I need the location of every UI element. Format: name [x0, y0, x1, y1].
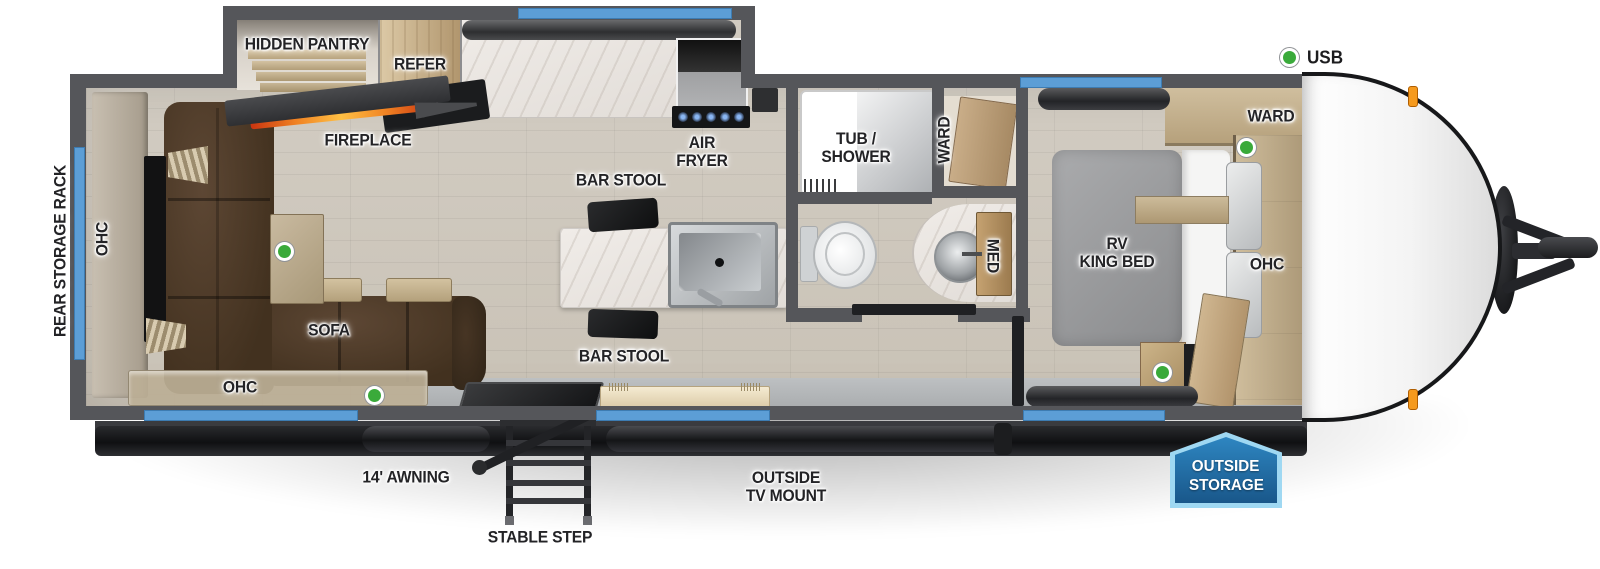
shower-head-icon	[804, 179, 840, 192]
burner-icon	[706, 112, 716, 122]
tv-screen	[144, 156, 166, 342]
outside-storage-badge-face: OUTSIDE STORAGE	[1175, 437, 1277, 503]
label-bar-stool-top: BAR STOOL	[576, 172, 666, 189]
bedroom-wall	[1016, 86, 1028, 322]
window-rear	[74, 147, 85, 360]
range-hood	[752, 88, 778, 112]
label-rear-storage-rack: REAR STORAGE RACK	[52, 165, 69, 337]
sofa-headrest-right	[386, 278, 452, 302]
hitch-coupler	[1538, 237, 1598, 258]
range-burner-strip	[672, 106, 750, 128]
step-rung-3	[506, 480, 591, 486]
label-ward-bedroom: WARD	[1247, 108, 1294, 125]
ward-closet-wall-h	[932, 186, 1028, 198]
awning-tube-left	[362, 426, 490, 452]
label-outside-tv-mount: OUTSIDE TV MOUNT	[746, 469, 826, 505]
label-outside-tv-mount-line1: OUTSIDE	[746, 469, 826, 487]
pantry-shelf-3	[256, 72, 366, 81]
step-rung-2	[506, 460, 591, 466]
top-wall-left-segment	[70, 74, 237, 88]
sink-drain	[715, 258, 724, 267]
label-ward-bath: WARD	[936, 116, 953, 163]
awning-end-bracket	[994, 423, 1012, 455]
bed-overhead-shelf	[1135, 196, 1229, 224]
front-cap	[1302, 72, 1502, 422]
bench-fan-decor	[609, 383, 629, 391]
label-tub-shower-line1: TUB /	[821, 130, 890, 148]
window-entry	[596, 410, 770, 421]
label-awning: 14' AWNING	[362, 469, 449, 486]
label-bar-stool-bottom: BAR STOOL	[579, 348, 669, 365]
burner-icon	[678, 112, 688, 122]
bench-fan-decor	[741, 383, 761, 391]
label-ohc-rear: OHC	[94, 222, 111, 256]
pantry-shelf-2	[252, 61, 366, 70]
usb-port-dot-bed-foot	[1156, 366, 1169, 379]
bath-wall-left	[786, 86, 798, 322]
sofa-seam	[216, 108, 219, 388]
toilet-seat-ring	[825, 232, 865, 276]
label-fireplace: FIREPLACE	[325, 132, 412, 149]
label-sofa: SOFA	[308, 322, 350, 339]
label-rv-king-bed: RV KING BED	[1079, 235, 1154, 271]
label-tub-shower: TUB / SHOWER	[821, 130, 890, 166]
usb-legend-dot	[1283, 51, 1296, 64]
bath-pocket-door	[852, 304, 976, 315]
island-sink	[668, 222, 778, 308]
bedroom-door	[1012, 316, 1024, 406]
counter-backsplash-roll	[462, 20, 736, 40]
label-hidden-pantry: HIDDEN PANTRY	[245, 36, 369, 53]
label-med: MED	[985, 239, 1002, 273]
sofa-chaise-section	[164, 102, 274, 394]
window-bedroom-bottom	[1023, 410, 1165, 421]
usb-legend-label: USB	[1307, 48, 1343, 69]
label-ohc-front: OHC	[223, 379, 257, 396]
tub-divider-wall	[798, 192, 932, 204]
usb-port-dot-ohc	[368, 389, 381, 402]
window-bottom-left	[144, 410, 358, 421]
bed-pillow-top	[1226, 162, 1262, 250]
label-rv-king-bed-line1: RV	[1079, 235, 1154, 253]
usb-port-dot-sofa	[278, 245, 291, 258]
burner-icon	[692, 112, 702, 122]
ohc-front-shelf	[128, 370, 428, 406]
toilet-bowl	[813, 221, 877, 289]
step-rung-4	[506, 498, 591, 504]
bar-stool-top-seat	[587, 198, 659, 233]
bedroom-foot-bench	[1026, 386, 1198, 407]
ward-closet-door	[948, 96, 1017, 189]
label-air-fryer: AIR FRYER	[676, 134, 728, 170]
marker-light-top	[1408, 86, 1418, 107]
burner-icon	[734, 112, 744, 122]
burner-icon	[720, 112, 730, 122]
step-foot-right	[583, 516, 592, 525]
bar-stool-bottom-seat	[588, 309, 659, 339]
lav-faucet	[962, 252, 982, 256]
label-air-fryer-line1: AIR	[676, 134, 728, 152]
side-table	[270, 214, 324, 304]
label-air-fryer-line2: FRYER	[676, 152, 728, 170]
window-bedroom-top	[1020, 77, 1162, 88]
floorplan-diagram: USB HIDDEN PANTRY REFER FIREPLACE AIR FR…	[0, 0, 1600, 569]
slideout-wall-right	[741, 6, 755, 88]
window-slideout	[518, 8, 732, 19]
label-tub-shower-line2: SHOWER	[821, 148, 890, 166]
label-outside-tv-mount-line2: TV MOUNT	[746, 487, 826, 505]
bath-wall-bottom-left	[786, 308, 862, 322]
sofa-seam	[168, 198, 270, 201]
marker-light-bottom	[1408, 389, 1418, 410]
air-fryer-lid	[678, 40, 746, 72]
sofa-seam	[168, 296, 270, 299]
label-refer: REFER	[394, 56, 446, 73]
usb-port-dot-bed-head	[1240, 141, 1253, 154]
sofa-armrest	[452, 296, 486, 390]
label-stable-step: STABLE STEP	[488, 529, 593, 546]
slideout-wall-left	[223, 6, 237, 88]
label-rv-king-bed-line2: KING BED	[1079, 253, 1154, 271]
step-foot-left	[505, 516, 514, 525]
outside-storage-line2: STORAGE	[1189, 476, 1264, 495]
awning-tube-right	[606, 426, 1008, 452]
outside-storage-line1: OUTSIDE	[1192, 457, 1260, 476]
step-handrail-cap	[472, 460, 487, 475]
bedroom-top-bolster	[1038, 88, 1170, 110]
label-ohc-bedroom: OHC	[1250, 256, 1284, 273]
